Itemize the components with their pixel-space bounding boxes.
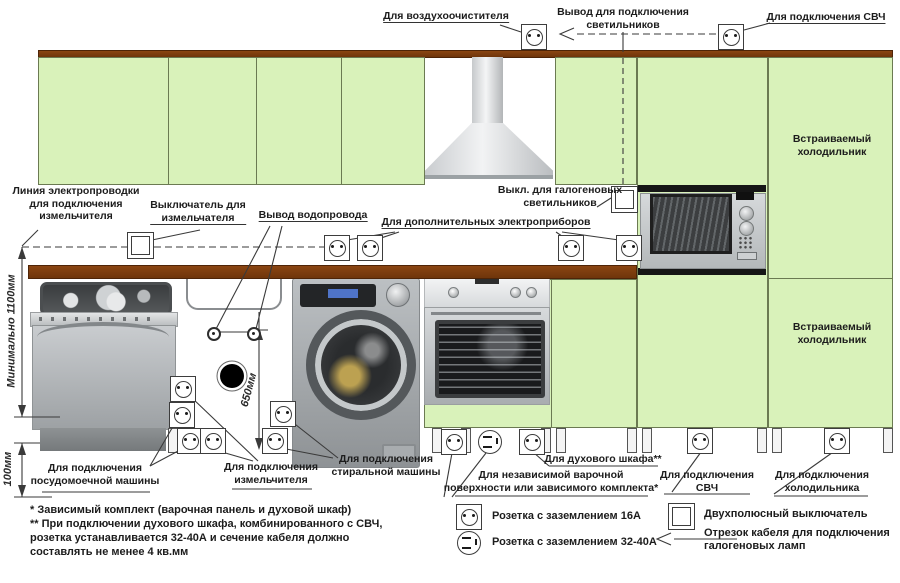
water-outlet-icon <box>207 327 221 341</box>
label-grinder-switch: Выключатель дляизмельчателя <box>150 199 246 225</box>
footnotes: * Зависимый комплект (варочная панель и … <box>30 503 382 559</box>
socket-16a-icon <box>324 235 350 261</box>
label-oven-socket: Для духового шкафа** <box>544 453 661 466</box>
label-builtin-fridge-bottom: Встраиваемыйхолодильник <box>793 321 871 346</box>
kitchen-wiring-diagram: Для воздухоочистителя Вывод для подключе… <box>0 0 900 583</box>
label-extra-appliances: Для дополнительных электроприборов <box>382 216 591 229</box>
label-water-output: Вывод водопровода <box>259 209 368 222</box>
label-dishwasher-socket: Для подключенияпосудомоечной машины <box>31 462 160 487</box>
socket-16a-icon <box>262 428 288 454</box>
leader-lines <box>0 0 900 583</box>
legend-halogen-cable: Отрезок кабеля для подключениягалогеновы… <box>704 527 890 553</box>
socket-16a-icon <box>824 428 850 454</box>
two-pole-switch-icon <box>127 232 154 259</box>
label-halogen-switch: Выкл. для галогеновыхсветильников <box>498 184 622 209</box>
socket-16a-icon <box>456 504 482 530</box>
legend-socket-16a: Розетка с заземлением 16А <box>492 510 641 523</box>
socket-16a-icon <box>170 376 196 402</box>
label-air-purifier: Для воздухоочистителя <box>383 10 509 23</box>
socket-16a-icon <box>718 24 744 50</box>
label-washer-socket: Для подключениястиральной машины <box>332 453 441 478</box>
legend-socket-32-40a: Розетка с заземлением 32-40А <box>492 536 657 549</box>
socket-32-40a-icon <box>457 531 481 555</box>
label-builtin-fridge-top: Встраиваемыйхолодильник <box>793 133 871 158</box>
label-fridge-socket: Для подключенияхолодильника <box>775 469 869 494</box>
label-hob-socket: Для независимой варочнойповерхности или … <box>444 469 658 494</box>
halogen-cable-icon <box>657 533 671 545</box>
socket-16a-icon <box>441 429 467 455</box>
dimension-1100mm: Минимально 1100мм <box>6 274 18 389</box>
socket-16a-icon <box>169 402 195 428</box>
two-pole-switch-icon <box>668 503 695 530</box>
socket-16a-icon <box>200 428 226 454</box>
socket-16a-icon <box>519 429 545 455</box>
socket-32-40a-icon <box>478 430 502 454</box>
socket-16a-icon <box>357 235 383 261</box>
water-outlet-icon <box>247 327 261 341</box>
label-microwave-socket: Для подключенияСВЧ <box>660 469 754 494</box>
socket-16a-icon <box>558 235 584 261</box>
dimension-100mm: 100мм <box>2 449 14 489</box>
socket-16a-icon <box>616 235 642 261</box>
label-lights-output: Вывод для подключениясветильников <box>557 6 689 31</box>
label-wiring-line-grinder: Линия электропроводкидля подключенияизме… <box>13 185 140 223</box>
label-grinder-socket: Для подключенияизмельчителя <box>224 461 318 486</box>
socket-16a-icon <box>687 428 713 454</box>
legend-two-pole-switch: Двухполюсный выключатель <box>704 508 868 521</box>
socket-16a-icon <box>521 24 547 50</box>
label-microwave-top: Для подключения СВЧ <box>766 11 885 24</box>
socket-16a-icon <box>270 401 296 427</box>
